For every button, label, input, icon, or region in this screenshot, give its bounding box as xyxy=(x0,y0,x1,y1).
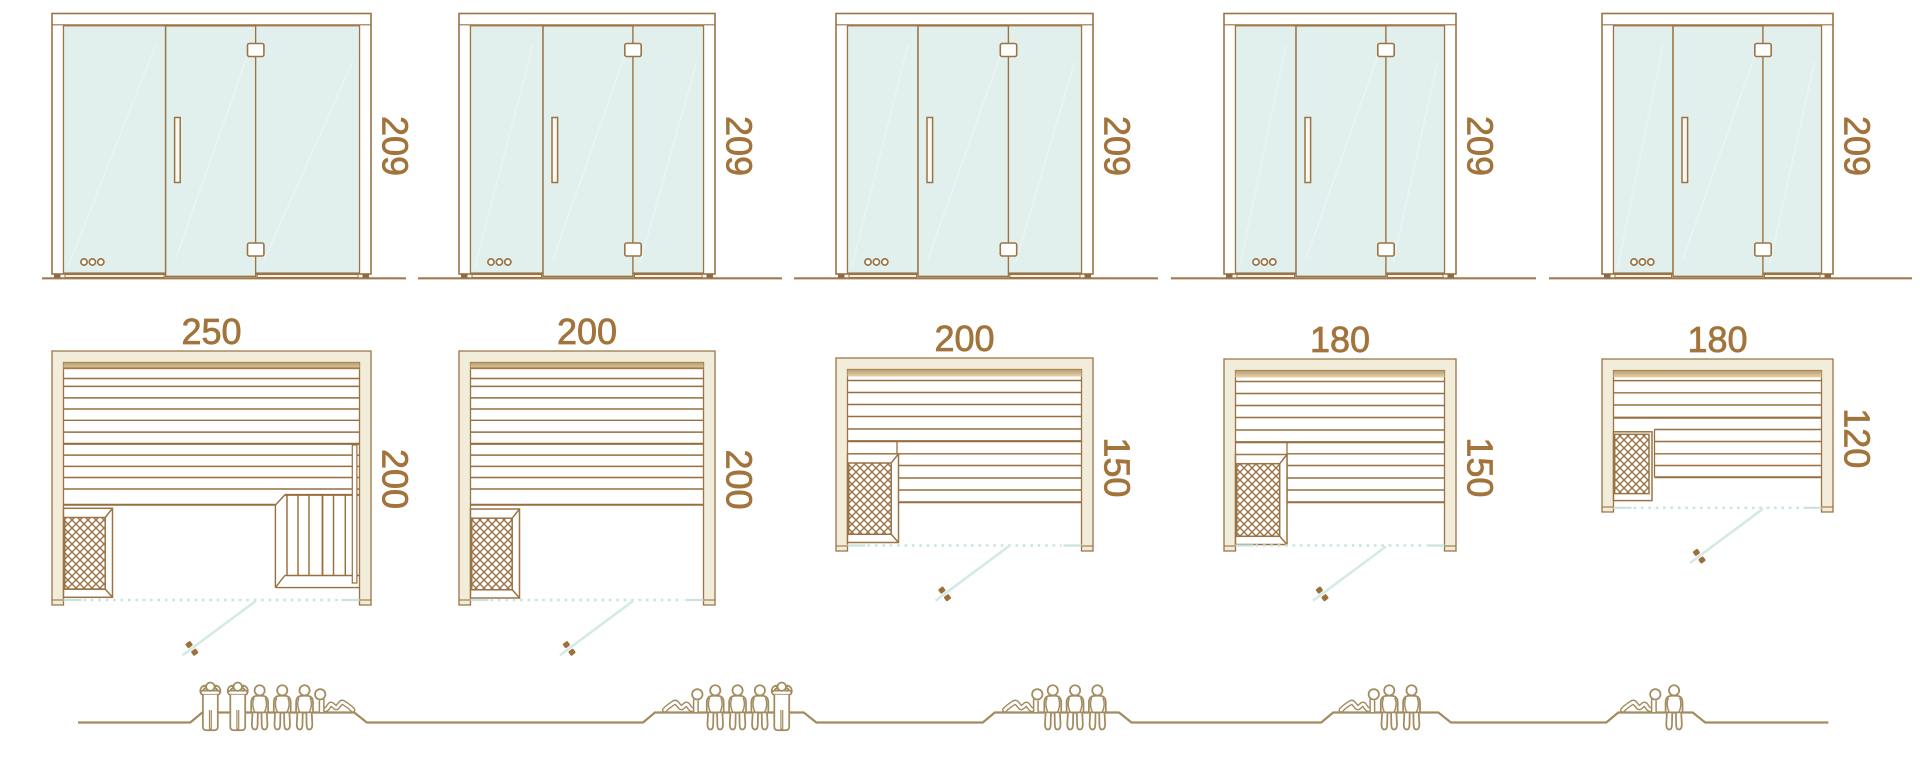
svg-text:200: 200 xyxy=(557,311,617,352)
svg-text:209: 209 xyxy=(719,116,760,176)
svg-text:150: 150 xyxy=(1460,437,1501,497)
svg-text:209: 209 xyxy=(375,116,416,176)
svg-text:209: 209 xyxy=(1460,116,1501,176)
svg-text:120: 120 xyxy=(1837,408,1878,468)
svg-text:209: 209 xyxy=(1837,116,1878,176)
svg-text:209: 209 xyxy=(1097,116,1138,176)
svg-text:250: 250 xyxy=(181,311,241,352)
svg-text:150: 150 xyxy=(1097,437,1138,497)
svg-text:180: 180 xyxy=(1687,319,1747,360)
svg-text:200: 200 xyxy=(375,449,416,509)
svg-text:200: 200 xyxy=(934,318,994,359)
svg-text:180: 180 xyxy=(1310,319,1370,360)
svg-text:200: 200 xyxy=(719,449,760,509)
